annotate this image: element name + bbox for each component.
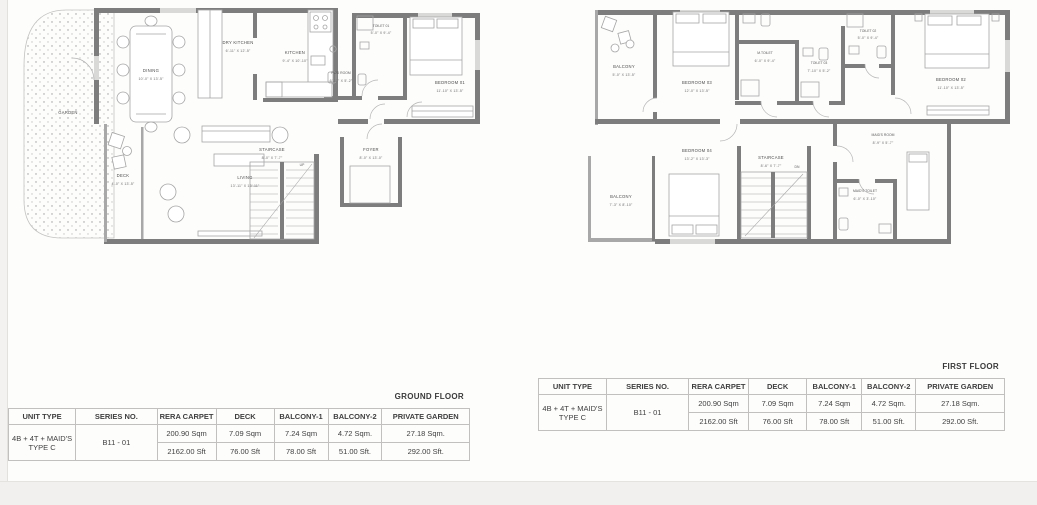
room-label-maids-toilet: MAID'S TOILET 6'-0" X 3'-10": [853, 189, 877, 201]
svg-text:13'-2" X 13'-3": 13'-2" X 13'-3": [684, 157, 710, 161]
first-floor-plan-svg: BALCONY 5'-0" X 13'-5" BEDROOM 03 12'-0"…: [585, 6, 1015, 254]
series-no-cell: B11 - 01: [606, 395, 688, 431]
room-label-toilet-03: TOILET 03 7'-10" X 5'-2": [808, 61, 832, 73]
deck-sqm: 7.09 Sqm: [216, 425, 274, 443]
svg-text:8'-0" X 7'-7": 8'-0" X 7'-7": [262, 156, 283, 160]
room-label-dry-kitchen: DRY KITCHEN 6'-11" X 12'-5": [223, 40, 254, 53]
balcony1-sft: 78.00 Sft: [274, 443, 328, 461]
table-row-sqm: 4B + 4T + MAID'S TYPE C B11 - 01 200.90 …: [539, 395, 1005, 413]
svg-text:GARDEN: GARDEN: [58, 110, 77, 115]
room-label-foyer: FOYER 8'-0" X 13'-0": [360, 147, 384, 160]
svg-text:8'-9" X 5'-7": 8'-9" X 5'-7": [873, 141, 894, 145]
first-floor-plan: BALCONY 5'-0" X 13'-5" BEDROOM 03 12'-0"…: [585, 6, 1015, 259]
room-label-garden: GARDEN: [58, 110, 77, 115]
svg-text:6'-11" X 5'-2": 6'-11" X 5'-2": [330, 79, 353, 83]
col-private-garden: PRIVATE GARDEN: [916, 379, 1005, 395]
deck-sft: 76.00 Sft: [748, 413, 807, 431]
svg-text:PWD ROOM: PWD ROOM: [331, 71, 351, 75]
private-garden-sqm: 27.18 Sqm.: [916, 395, 1005, 413]
room-label-toilet-02: TOILET 02 5'-0" X 9'-4": [858, 29, 879, 40]
ground-floor-area-table: UNIT TYPE SERIES NO. RERA CARPET DECK BA…: [8, 408, 470, 461]
room-label-staircase-first: STAIRCASE 8'-6" X 7'-7" DN: [758, 155, 800, 169]
svg-text:4'-0" X 13'-5": 4'-0" X 13'-5": [112, 182, 136, 186]
room-label-living: LIVING 13'-11" X 13'-11": [231, 175, 260, 188]
svg-text:6'-0" X 9'-4": 6'-0" X 9'-4": [755, 59, 776, 63]
deck-sqm: 7.09 Sqm: [748, 395, 807, 413]
svg-text:STAIRCASE: STAIRCASE: [259, 147, 285, 152]
series-no-cell: B11 - 01: [76, 425, 157, 461]
ground-floor-plan-svg: GARDEN DINING 10'-0" X 13'-5" DRY KITCHE…: [10, 4, 490, 256]
room-label-balcony-2: BALCONY 7'-3" X 8'-10": [610, 194, 634, 207]
room-label-bedroom-04: BEDROOM 04 13'-2" X 13'-3": [682, 148, 712, 161]
rera-carpet-sft: 2162.00 Sft: [689, 413, 749, 431]
ground-floor-plan: GARDEN DINING 10'-0" X 13'-5" DRY KITCHE…: [10, 4, 490, 261]
rera-carpet-sqm: 200.90 Sqm: [157, 425, 216, 443]
deck-sft: 76.00 Sft: [216, 443, 274, 461]
svg-text:BEDROOM 01: BEDROOM 01: [435, 80, 465, 85]
svg-text:6'-0" X 3'-10": 6'-0" X 3'-10": [854, 197, 878, 201]
svg-text:10'-0" X 13'-5": 10'-0" X 13'-5": [138, 77, 164, 81]
first-floor-title: FIRST FLOOR: [538, 362, 1005, 371]
svg-text:M.TOILET: M.TOILET: [757, 51, 773, 55]
page-left-margin: [0, 0, 8, 504]
svg-text:TOILET 03: TOILET 03: [811, 61, 828, 65]
table-header-row: UNIT TYPE SERIES NO. RERA CARPET DECK BA…: [539, 379, 1005, 395]
unit-type-line2: TYPE C: [541, 413, 604, 422]
col-deck: DECK: [216, 409, 274, 425]
unit-type-line2: TYPE C: [11, 443, 73, 452]
private-garden-sqm: 27.18 Sqm.: [382, 425, 470, 443]
svg-text:MAID'S TOILET: MAID'S TOILET: [853, 189, 877, 193]
garden-area: [24, 10, 114, 238]
svg-text:DRY KITCHEN: DRY KITCHEN: [223, 40, 254, 45]
table-row-sqm: 4B + 4T + MAID'S TYPE C B11 - 01 200.90 …: [9, 425, 470, 443]
ground-floor-title: GROUND FLOOR: [8, 392, 470, 401]
svg-text:TOILET 01: TOILET 01: [373, 24, 390, 28]
col-series-no: SERIES NO.: [606, 379, 688, 395]
svg-text:MAID'S ROOM: MAID'S ROOM: [872, 133, 895, 137]
private-garden-sft: 292.00 Sft.: [382, 443, 470, 461]
balcony1-sqm: 7.24 Sqm: [274, 425, 328, 443]
svg-text:12'-0" X 13'-5": 12'-0" X 13'-5": [684, 89, 710, 93]
col-rera-carpet: RERA CARPET: [689, 379, 749, 395]
table-header-row: UNIT TYPE SERIES NO. RERA CARPET DECK BA…: [9, 409, 470, 425]
svg-text:7'-3" X 8'-10": 7'-3" X 8'-10": [610, 203, 634, 207]
ground-floor-table-section: GROUND FLOOR UNIT TYPE SERIES NO. RERA C…: [8, 392, 470, 461]
room-label-kitchen: KITCHEN 9'-4" X 10'-10": [282, 50, 308, 63]
svg-text:BALCONY: BALCONY: [613, 64, 635, 69]
svg-text:13'-11" X 13'-11": 13'-11" X 13'-11": [231, 184, 260, 188]
svg-text:BALCONY: BALCONY: [610, 194, 632, 199]
svg-text:BEDROOM 03: BEDROOM 03: [682, 80, 712, 85]
svg-text:KITCHEN: KITCHEN: [285, 50, 305, 55]
balcony1-sft: 78.00 Sft: [807, 413, 862, 431]
rera-carpet-sqm: 200.90 Sqm: [689, 395, 749, 413]
col-deck: DECK: [748, 379, 807, 395]
col-series-no: SERIES NO.: [76, 409, 157, 425]
col-balcony-1: BALCONY-1: [274, 409, 328, 425]
svg-text:6'-11" X 12'-5": 6'-11" X 12'-5": [226, 49, 251, 53]
room-label-bedroom-02: BEDROOM 02 11'-10" X 13'-5": [936, 77, 966, 90]
col-unit-type: UNIT TYPE: [539, 379, 607, 395]
svg-text:FOYER: FOYER: [363, 147, 379, 152]
first-floor-area-table: UNIT TYPE SERIES NO. RERA CARPET DECK BA…: [538, 378, 1005, 431]
balcony2-sft: 51.00 Sft.: [861, 413, 916, 431]
room-label-m-toilet: M.TOILET 6'-0" X 9'-4": [755, 51, 776, 63]
rera-carpet-sft: 2162.00 Sft: [157, 443, 216, 461]
unit-type-cell: 4B + 4T + MAID'S TYPE C: [9, 425, 76, 461]
col-balcony-2: BALCONY-2: [861, 379, 916, 395]
first-floor-table-section: FIRST FLOOR UNIT TYPE SERIES NO. RERA CA…: [538, 362, 1005, 431]
svg-text:5'-0" X 9'-4": 5'-0" X 9'-4": [858, 36, 879, 40]
col-balcony-1: BALCONY-1: [807, 379, 862, 395]
col-rera-carpet: RERA CARPET: [157, 409, 216, 425]
svg-text:LIVING: LIVING: [237, 175, 252, 180]
svg-text:5'-0" X 9'-4": 5'-0" X 9'-4": [371, 31, 392, 35]
col-private-garden: PRIVATE GARDEN: [382, 409, 470, 425]
private-garden-sft: 292.00 Sft.: [916, 413, 1005, 431]
svg-text:TOILET 02: TOILET 02: [860, 29, 877, 33]
balcony2-sqm: 4.72 Sqm.: [328, 425, 382, 443]
stair-up-label: UP: [300, 163, 305, 167]
first-furniture: [601, 12, 999, 238]
svg-text:5'-0" X 13'-5": 5'-0" X 13'-5": [613, 73, 637, 77]
page-bottom-margin: [0, 481, 1037, 505]
svg-text:7'-10" X 5'-2": 7'-10" X 5'-2": [808, 69, 832, 73]
unit-type-cell: 4B + 4T + MAID'S TYPE C: [539, 395, 607, 431]
svg-text:DECK: DECK: [117, 173, 130, 178]
svg-text:11'-10" X 13'-5": 11'-10" X 13'-5": [938, 86, 966, 90]
svg-text:BEDROOM 04: BEDROOM 04: [682, 148, 712, 153]
unit-type-line1: 4B + 4T + MAID'S: [541, 404, 604, 413]
room-label-maids-room: MAID'S ROOM 8'-9" X 5'-7": [872, 133, 895, 145]
svg-text:9'-4" X 10'-10": 9'-4" X 10'-10": [282, 59, 308, 63]
ground-furniture: [72, 10, 473, 239]
svg-text:DINING: DINING: [143, 68, 159, 73]
svg-text:BEDROOM 02: BEDROOM 02: [936, 77, 966, 82]
stair-dn-label: DN: [795, 165, 800, 169]
balcony2-sft: 51.00 Sft.: [328, 443, 382, 461]
svg-text:STAIRCASE: STAIRCASE: [758, 155, 784, 160]
room-label-toilet-01: TOILET 01 5'-0" X 9'-4": [371, 24, 392, 35]
unit-type-line1: 4B + 4T + MAID'S: [11, 434, 73, 443]
room-label-deck: DECK 4'-0" X 13'-5": [112, 173, 136, 186]
room-label-balcony-1: BALCONY 5'-0" X 13'-5": [613, 64, 637, 77]
svg-text:8'-6" X 7'-7": 8'-6" X 7'-7": [761, 164, 782, 168]
svg-text:11'-10" X 13'-5": 11'-10" X 13'-5": [437, 89, 465, 93]
col-unit-type: UNIT TYPE: [9, 409, 76, 425]
svg-text:8'-0" X 13'-0": 8'-0" X 13'-0": [360, 156, 384, 160]
col-balcony-2: BALCONY-2: [328, 409, 382, 425]
room-label-bedroom-03: BEDROOM 03 12'-0" X 13'-5": [682, 80, 712, 93]
room-label-bedroom-01: BEDROOM 01 11'-10" X 13'-5": [435, 80, 465, 93]
balcony2-sqm: 4.72 Sqm.: [861, 395, 916, 413]
balcony1-sqm: 7.24 Sqm: [807, 395, 862, 413]
